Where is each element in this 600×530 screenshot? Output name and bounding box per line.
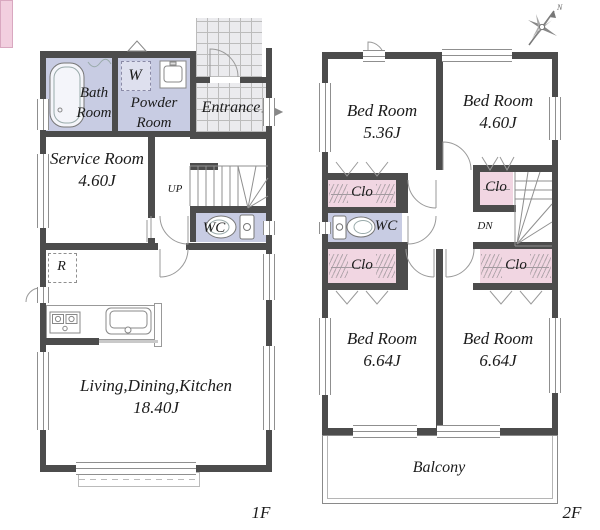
- floor2-tag: 2F: [551, 502, 593, 524]
- sliding-window: [353, 425, 417, 438]
- casement-window: [363, 50, 385, 62]
- powder-room-label: Powder Room: [118, 94, 190, 133]
- sliding-window: [437, 425, 500, 438]
- stairs-down-label: DN: [470, 219, 500, 233]
- bed4-area: 6.64J: [444, 350, 552, 372]
- clo-top-right-label: Clo: [478, 178, 514, 198]
- service-room-label: Service Room 4.60J: [46, 148, 148, 192]
- sliding-door: [147, 216, 151, 242]
- kitchen-sink-icon: [106, 308, 151, 334]
- bed3-label: Bed Room 6.64J: [328, 328, 436, 372]
- door-arc: [160, 216, 188, 277]
- stairs-up-label: UP: [160, 182, 190, 196]
- stairs-up-icon: [190, 166, 268, 208]
- bed2-label: Bed Room 4.60J: [444, 90, 552, 134]
- floorplan-canvas: N: [0, 0, 600, 530]
- casement-window: [37, 287, 49, 303]
- service-room-area: 4.60J: [46, 170, 148, 192]
- window: [442, 49, 512, 62]
- bed2-name: Bed Room: [444, 90, 552, 112]
- clo-mid-right-label: Clo: [480, 256, 552, 276]
- bed1-name: Bed Room: [328, 100, 436, 122]
- bed4-name: Bed Room: [444, 328, 552, 350]
- bed2-area: 4.60J: [444, 112, 552, 134]
- bed1-area: 5.36J: [328, 122, 436, 144]
- window: [263, 254, 275, 300]
- bed3-name: Bed Room: [328, 328, 436, 350]
- bath-room-label: Bath Room: [72, 84, 116, 123]
- compass-icon: N: [528, 3, 563, 45]
- washer-label: W: [121, 66, 149, 87]
- window: [37, 99, 49, 130]
- stove-icon: [50, 312, 80, 333]
- clo-top-left-label: Clo: [328, 183, 396, 203]
- floor1-tag: 1F: [240, 502, 282, 524]
- bed3-area: 6.64J: [328, 350, 436, 372]
- ldk-name: Living,Dining,Kitchen: [40, 375, 272, 397]
- compass-north-label: N: [556, 3, 563, 12]
- window: [263, 221, 275, 235]
- balcony-label: Balcony: [322, 458, 556, 479]
- stairs-down-icon: [515, 172, 552, 246]
- entrance-door-arc: [210, 49, 238, 77]
- vent-icon: [128, 41, 146, 51]
- clo-mid-left-label: Clo: [328, 256, 396, 276]
- wc-1f-label: WC: [198, 219, 230, 239]
- sliding-window: [76, 462, 196, 475]
- bed1-label: Bed Room 5.36J: [328, 100, 436, 144]
- ldk-area: 18.40J: [40, 397, 272, 419]
- ldk-label: Living,Dining,Kitchen 18.40J: [40, 375, 272, 419]
- window: [319, 222, 331, 234]
- fridge-label: R: [48, 258, 75, 276]
- door-arc: [406, 142, 474, 277]
- bed4-label: Bed Room 6.64J: [444, 328, 552, 372]
- wc-2f-label: WC: [368, 217, 404, 237]
- entrance-label: Entrance: [196, 98, 266, 119]
- sink-icon: [160, 61, 186, 88]
- service-room-name: Service Room: [46, 148, 148, 170]
